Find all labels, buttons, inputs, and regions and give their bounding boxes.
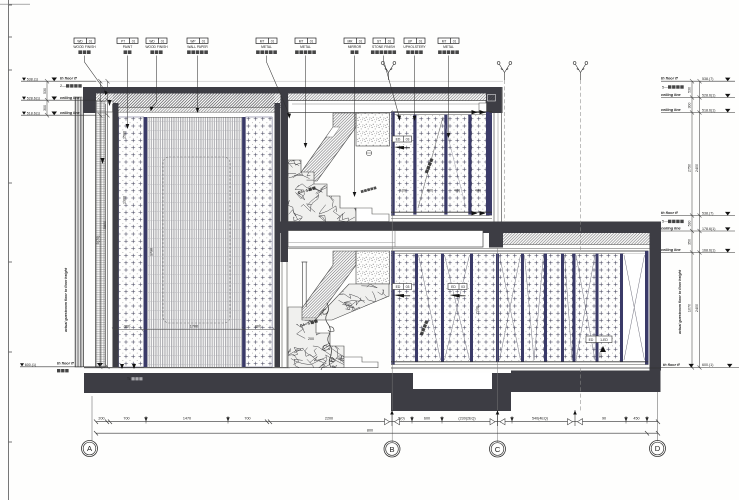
svg-text:ED: ED [589, 338, 594, 342]
svg-text:UPHOLSTERY: UPHOLSTERY [403, 45, 426, 49]
svg-text:700: 700 [123, 417, 129, 421]
svg-text:538.(1): 538.(1) [27, 78, 38, 82]
svg-text:ST: ST [377, 39, 381, 43]
svg-text:B: B [389, 445, 394, 454]
svg-text:WOOD FINISH: WOOD FINISH [73, 45, 96, 49]
svg-text:800: 800 [367, 429, 373, 433]
svg-text:METAL: METAL [261, 45, 272, 49]
svg-text:600.(1): 600.(1) [702, 363, 713, 367]
svg-text:PT: PT [121, 39, 125, 43]
svg-text:D: D [655, 444, 661, 453]
svg-text:1700: 1700 [190, 325, 198, 329]
svg-text:518.6(1): 518.6(1) [27, 112, 40, 116]
svg-text:UP: UP [408, 39, 412, 43]
svg-text:700: 700 [244, 417, 250, 421]
svg-text:WP: WP [190, 39, 195, 43]
svg-text:03: 03 [461, 285, 465, 289]
svg-text:01: 01 [453, 39, 457, 43]
svg-text:600: 600 [424, 417, 430, 421]
svg-text:540(4EQ): 540(4EQ) [532, 417, 548, 421]
svg-text:200: 200 [98, 417, 104, 421]
svg-text:2400: 2400 [695, 164, 699, 172]
svg-text:5(70): 5(70) [96, 236, 100, 245]
svg-text:2750: 2750 [688, 164, 692, 172]
svg-text:MT: MT [442, 39, 447, 43]
svg-text:530: 530 [688, 87, 692, 93]
svg-text:ceiling line: ceiling line [661, 108, 681, 112]
svg-text:th floor ff: th floor ff [57, 362, 74, 366]
svg-text:01: 01 [359, 39, 363, 43]
svg-text:600.(1): 600.(1) [25, 363, 36, 367]
svg-text:th floor ff: th floor ff [60, 77, 77, 81]
svg-text:90: 90 [602, 417, 606, 421]
svg-text:01: 01 [161, 39, 165, 43]
svg-text:5—: 5— [662, 220, 668, 224]
svg-text:1(0): 1(0) [400, 189, 406, 193]
svg-text:178.6(1): 178.6(1) [702, 227, 715, 231]
svg-text:530: 530 [43, 88, 47, 94]
svg-text:WOOD FINISH: WOOD FINISH [145, 45, 168, 49]
svg-text:03: 03 [406, 138, 410, 142]
svg-text:168.6(1): 168.6(1) [702, 248, 715, 252]
svg-text:METAL: METAL [300, 45, 311, 49]
svg-text:538.(7): 538.(7) [702, 211, 713, 215]
svg-text:ED: ED [451, 285, 456, 289]
svg-text:MIRROR: MIRROR [348, 45, 362, 49]
svg-text:(80): (80) [124, 325, 131, 329]
svg-text:WALL PAPER: WALL PAPER [187, 45, 208, 49]
svg-text:2400: 2400 [695, 304, 699, 312]
svg-text:4(0): 4(0) [475, 189, 481, 193]
svg-text:300: 300 [43, 105, 47, 111]
svg-text:MT: MT [260, 39, 265, 43]
svg-text:ceiling line: ceiling line [661, 248, 681, 252]
svg-text:ceiling line: ceiling line [661, 93, 681, 97]
svg-text:actual guestroom floor to floo: actual guestroom floor to floor height [64, 267, 68, 332]
svg-text:ceiling line: ceiling line [60, 111, 80, 115]
svg-text:C: C [495, 445, 501, 454]
svg-text:MR: MR [348, 39, 354, 43]
svg-text:350: 350 [688, 239, 692, 245]
svg-text:STONE FINISH: STONE FINISH [372, 45, 396, 49]
svg-text:5800: 5800 [103, 221, 107, 229]
svg-text:538.(7): 538.(7) [702, 77, 713, 81]
svg-text:TL: TL [127, 377, 131, 381]
svg-text:ED: ED [396, 285, 401, 289]
svg-text:450: 450 [633, 417, 639, 421]
svg-text:1300: 1300 [123, 196, 127, 204]
svg-text:ceiling line: ceiling line [60, 96, 80, 100]
svg-text:1730: 1730 [150, 248, 154, 256]
svg-text:01: 01 [89, 39, 93, 43]
svg-text:200: 200 [599, 352, 603, 358]
svg-text:METAL: METAL [443, 45, 454, 49]
svg-text:1070: 1070 [688, 304, 692, 312]
svg-text:01: 01 [388, 39, 392, 43]
svg-text:ceiling line: ceiling line [661, 227, 681, 231]
svg-text:ED: ED [396, 138, 401, 142]
svg-text:WD: WD [77, 39, 83, 43]
svg-text:528.6(1): 528.6(1) [27, 97, 40, 101]
svg-text:01: 01 [132, 39, 136, 43]
svg-text:2—: 2— [60, 84, 66, 88]
svg-text:th floor ff: th floor ff [661, 211, 678, 215]
svg-text:01: 01 [202, 39, 206, 43]
svg-text:518.6(1): 518.6(1) [702, 108, 715, 112]
svg-text:th floor ff: th floor ff [661, 77, 678, 81]
svg-text:01: 01 [310, 39, 314, 43]
svg-text:528.6(1): 528.6(1) [702, 93, 715, 97]
svg-text:7(10): 7(10) [476, 306, 480, 314]
svg-text:01: 01 [419, 39, 423, 43]
svg-text:actual guestroom floor to floo: actual guestroom floor to floor height [678, 269, 682, 334]
svg-text:1-ED: 1-ED [600, 338, 608, 342]
svg-text:200: 200 [308, 337, 314, 341]
svg-text:(230(2EQ): (230(2EQ) [458, 417, 475, 421]
svg-text:530: 530 [688, 221, 692, 227]
svg-text:2200: 2200 [325, 417, 333, 421]
svg-text:(80): (80) [255, 325, 262, 329]
svg-text:5—: 5— [662, 85, 668, 89]
svg-text:PAINT: PAINT [123, 45, 132, 49]
svg-text:4(0): 4(0) [454, 189, 460, 193]
svg-text:1580: 1580 [123, 131, 127, 139]
svg-text:th floor ff: th floor ff [663, 363, 680, 367]
svg-text:MT: MT [299, 39, 304, 43]
svg-text:1470: 1470 [183, 417, 191, 421]
svg-text:300: 300 [688, 103, 692, 109]
svg-text:03: 03 [406, 285, 410, 289]
svg-text:WD: WD [149, 39, 155, 43]
svg-text:6(0): 6(0) [427, 189, 433, 193]
svg-text:01: 01 [271, 39, 275, 43]
